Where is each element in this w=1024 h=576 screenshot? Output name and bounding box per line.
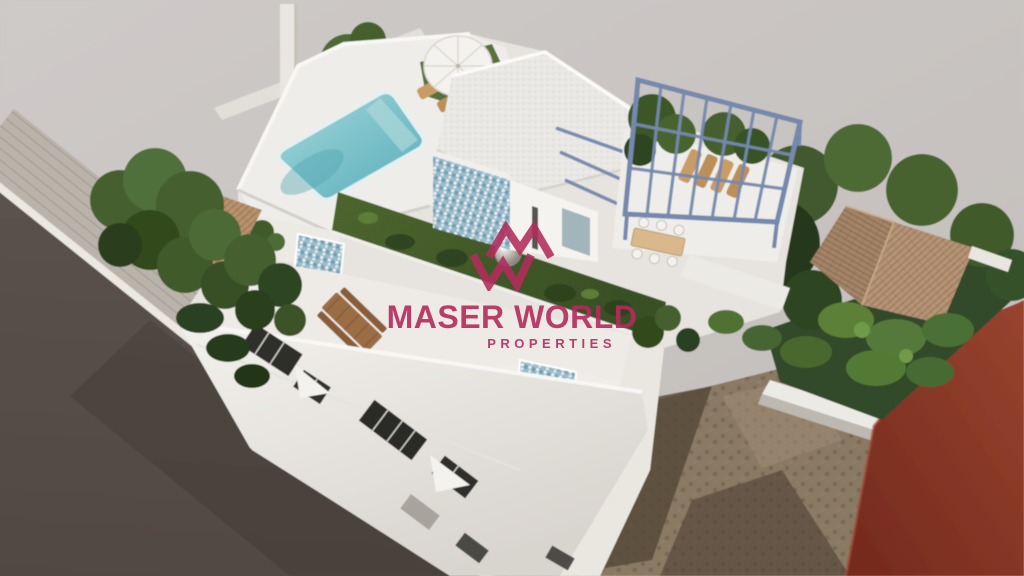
- tree: [824, 124, 892, 192]
- tree: [274, 304, 306, 336]
- hedge-bush: [780, 336, 832, 368]
- hedge-bush: [906, 357, 954, 387]
- hedge-bush: [742, 325, 782, 351]
- bush: [676, 328, 700, 352]
- hedge-highlight: [854, 322, 870, 338]
- shrub-light: [581, 289, 599, 299]
- render-stage: MASER WORLD PROPERTIES: [0, 0, 1024, 576]
- hedge-bush: [708, 310, 744, 334]
- shrub: [604, 300, 632, 316]
- door-slit: [532, 206, 538, 250]
- hedge-bush: [922, 313, 974, 347]
- hedge-highlight: [899, 349, 913, 363]
- tree: [98, 223, 142, 267]
- shrub: [385, 234, 415, 250]
- hedge-bush: [206, 334, 250, 362]
- shrub: [436, 249, 468, 267]
- villa-aerial-render: [0, 0, 1024, 576]
- shrub: [544, 284, 576, 302]
- hedge-bush: [176, 303, 224, 333]
- tree: [235, 290, 275, 330]
- hedge-bush: [846, 350, 906, 386]
- tree: [886, 154, 958, 226]
- bush: [655, 305, 681, 331]
- hedge-bush: [234, 364, 270, 388]
- shrub-light: [358, 212, 378, 224]
